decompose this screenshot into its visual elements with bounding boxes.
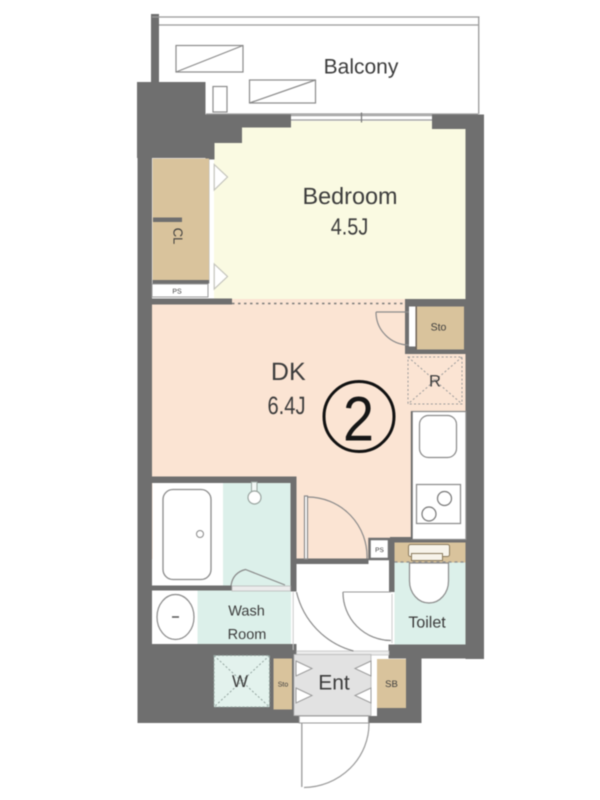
svg-text:6.4J: 6.4J xyxy=(268,392,306,420)
svg-text:Ent: Ent xyxy=(318,672,350,695)
svg-text:Toilet: Toilet xyxy=(408,615,446,632)
svg-text:Balcony: Balcony xyxy=(324,56,399,79)
svg-text:Sto: Sto xyxy=(278,682,289,689)
svg-text:SB: SB xyxy=(385,679,398,690)
svg-text:Sto: Sto xyxy=(431,322,447,334)
svg-text:PS: PS xyxy=(375,547,384,554)
svg-text:PS: PS xyxy=(172,289,182,296)
svg-text:Bedroom: Bedroom xyxy=(303,183,398,209)
svg-text:2: 2 xyxy=(343,385,374,455)
svg-text:R: R xyxy=(429,373,441,391)
svg-text:4.5J: 4.5J xyxy=(331,214,369,240)
svg-text:Room: Room xyxy=(228,627,267,643)
svg-text:W: W xyxy=(232,672,248,691)
svg-text:Wash: Wash xyxy=(228,604,265,620)
svg-text:CL: CL xyxy=(171,228,186,245)
svg-text:DK: DK xyxy=(271,358,306,386)
